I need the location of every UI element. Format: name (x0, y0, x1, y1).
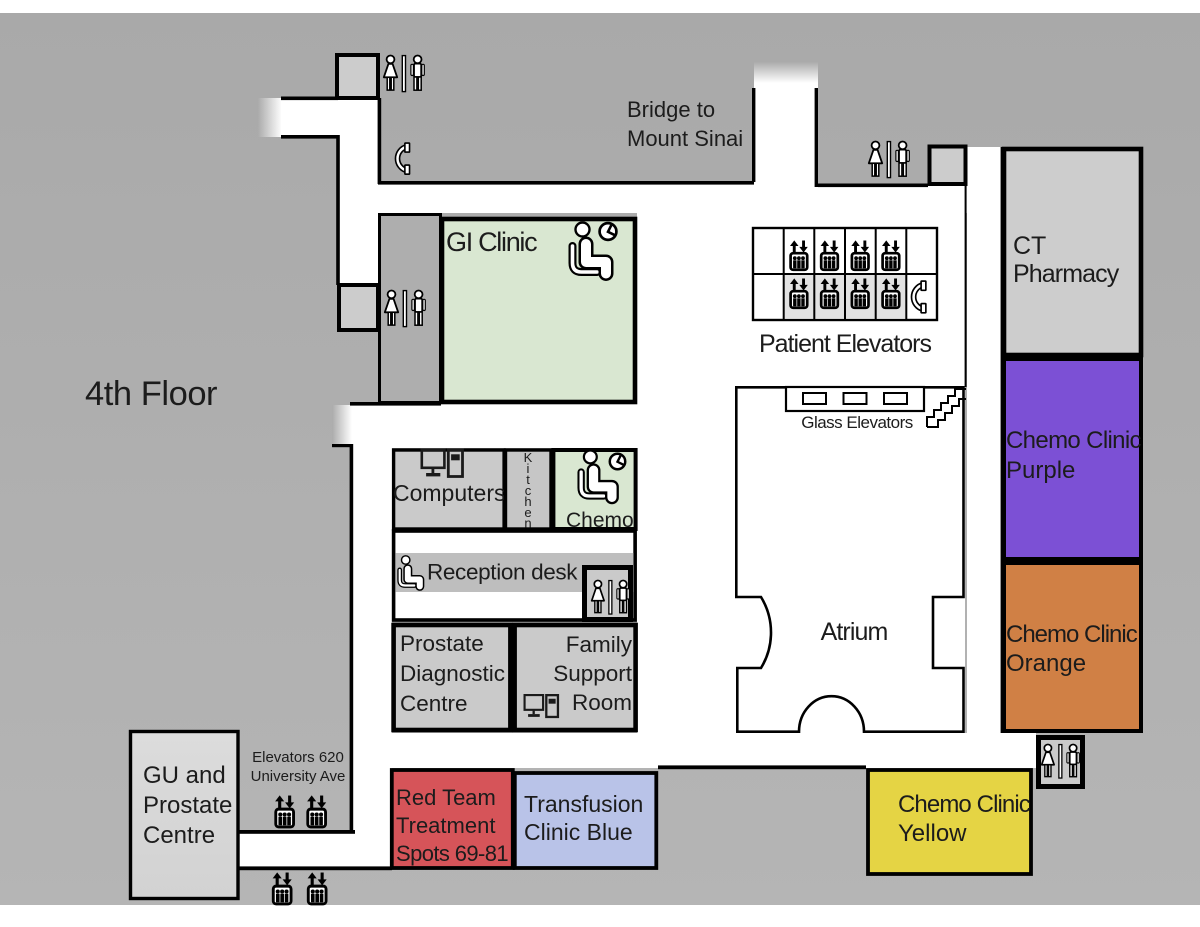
svg-text:University Ave: University Ave (251, 768, 346, 785)
svg-text:Transfusion: Transfusion (524, 791, 643, 817)
svg-text:Yellow: Yellow (898, 820, 967, 847)
svg-text:Diagnostic: Diagnostic (400, 661, 505, 686)
svg-text:GU and: GU and (143, 762, 226, 789)
svg-text:Spots 69-81: Spots 69-81 (396, 841, 508, 866)
svg-text:4th Floor: 4th Floor (85, 375, 217, 413)
svg-text:Chemo: Chemo (566, 509, 634, 532)
svg-text:Treatment: Treatment (396, 813, 495, 838)
svg-text:Prostate: Prostate (400, 631, 484, 656)
svg-text:Chemo Clinic: Chemo Clinic (898, 791, 1031, 818)
svg-text:Pharmacy: Pharmacy (1013, 260, 1120, 288)
svg-text:Clinic Blue: Clinic Blue (524, 819, 633, 845)
svg-text:GI Clinic: GI Clinic (446, 227, 537, 257)
svg-text:Support: Support (553, 661, 633, 686)
svg-text:n: n (524, 516, 531, 531)
svg-text:Glass Elevators: Glass Elevators (801, 413, 913, 432)
svg-text:Purple: Purple (1006, 457, 1075, 484)
svg-text:Elevators 620: Elevators 620 (252, 749, 344, 766)
svg-text:Chemo Clinic: Chemo Clinic (1006, 427, 1142, 454)
svg-text:Bridge to: Bridge to (627, 97, 715, 122)
svg-text:Prostate: Prostate (143, 792, 232, 819)
svg-text:Centre: Centre (143, 822, 215, 849)
svg-text:Atrium: Atrium (821, 618, 888, 646)
svg-text:Patient Elevators: Patient Elevators (759, 330, 931, 358)
svg-text:Centre: Centre (400, 691, 468, 716)
svg-text:Reception desk: Reception desk (427, 560, 578, 585)
svg-text:CT: CT (1013, 232, 1046, 260)
svg-text:Mount Sinai: Mount Sinai (627, 126, 743, 151)
svg-text:Orange: Orange (1006, 650, 1086, 677)
svg-text:Chemo Clinic: Chemo Clinic (1006, 621, 1138, 648)
svg-text:Computers: Computers (393, 480, 505, 506)
svg-text:Room: Room (572, 690, 632, 715)
svg-text:Red Team: Red Team (396, 785, 496, 810)
svg-text:Family: Family (566, 632, 633, 657)
